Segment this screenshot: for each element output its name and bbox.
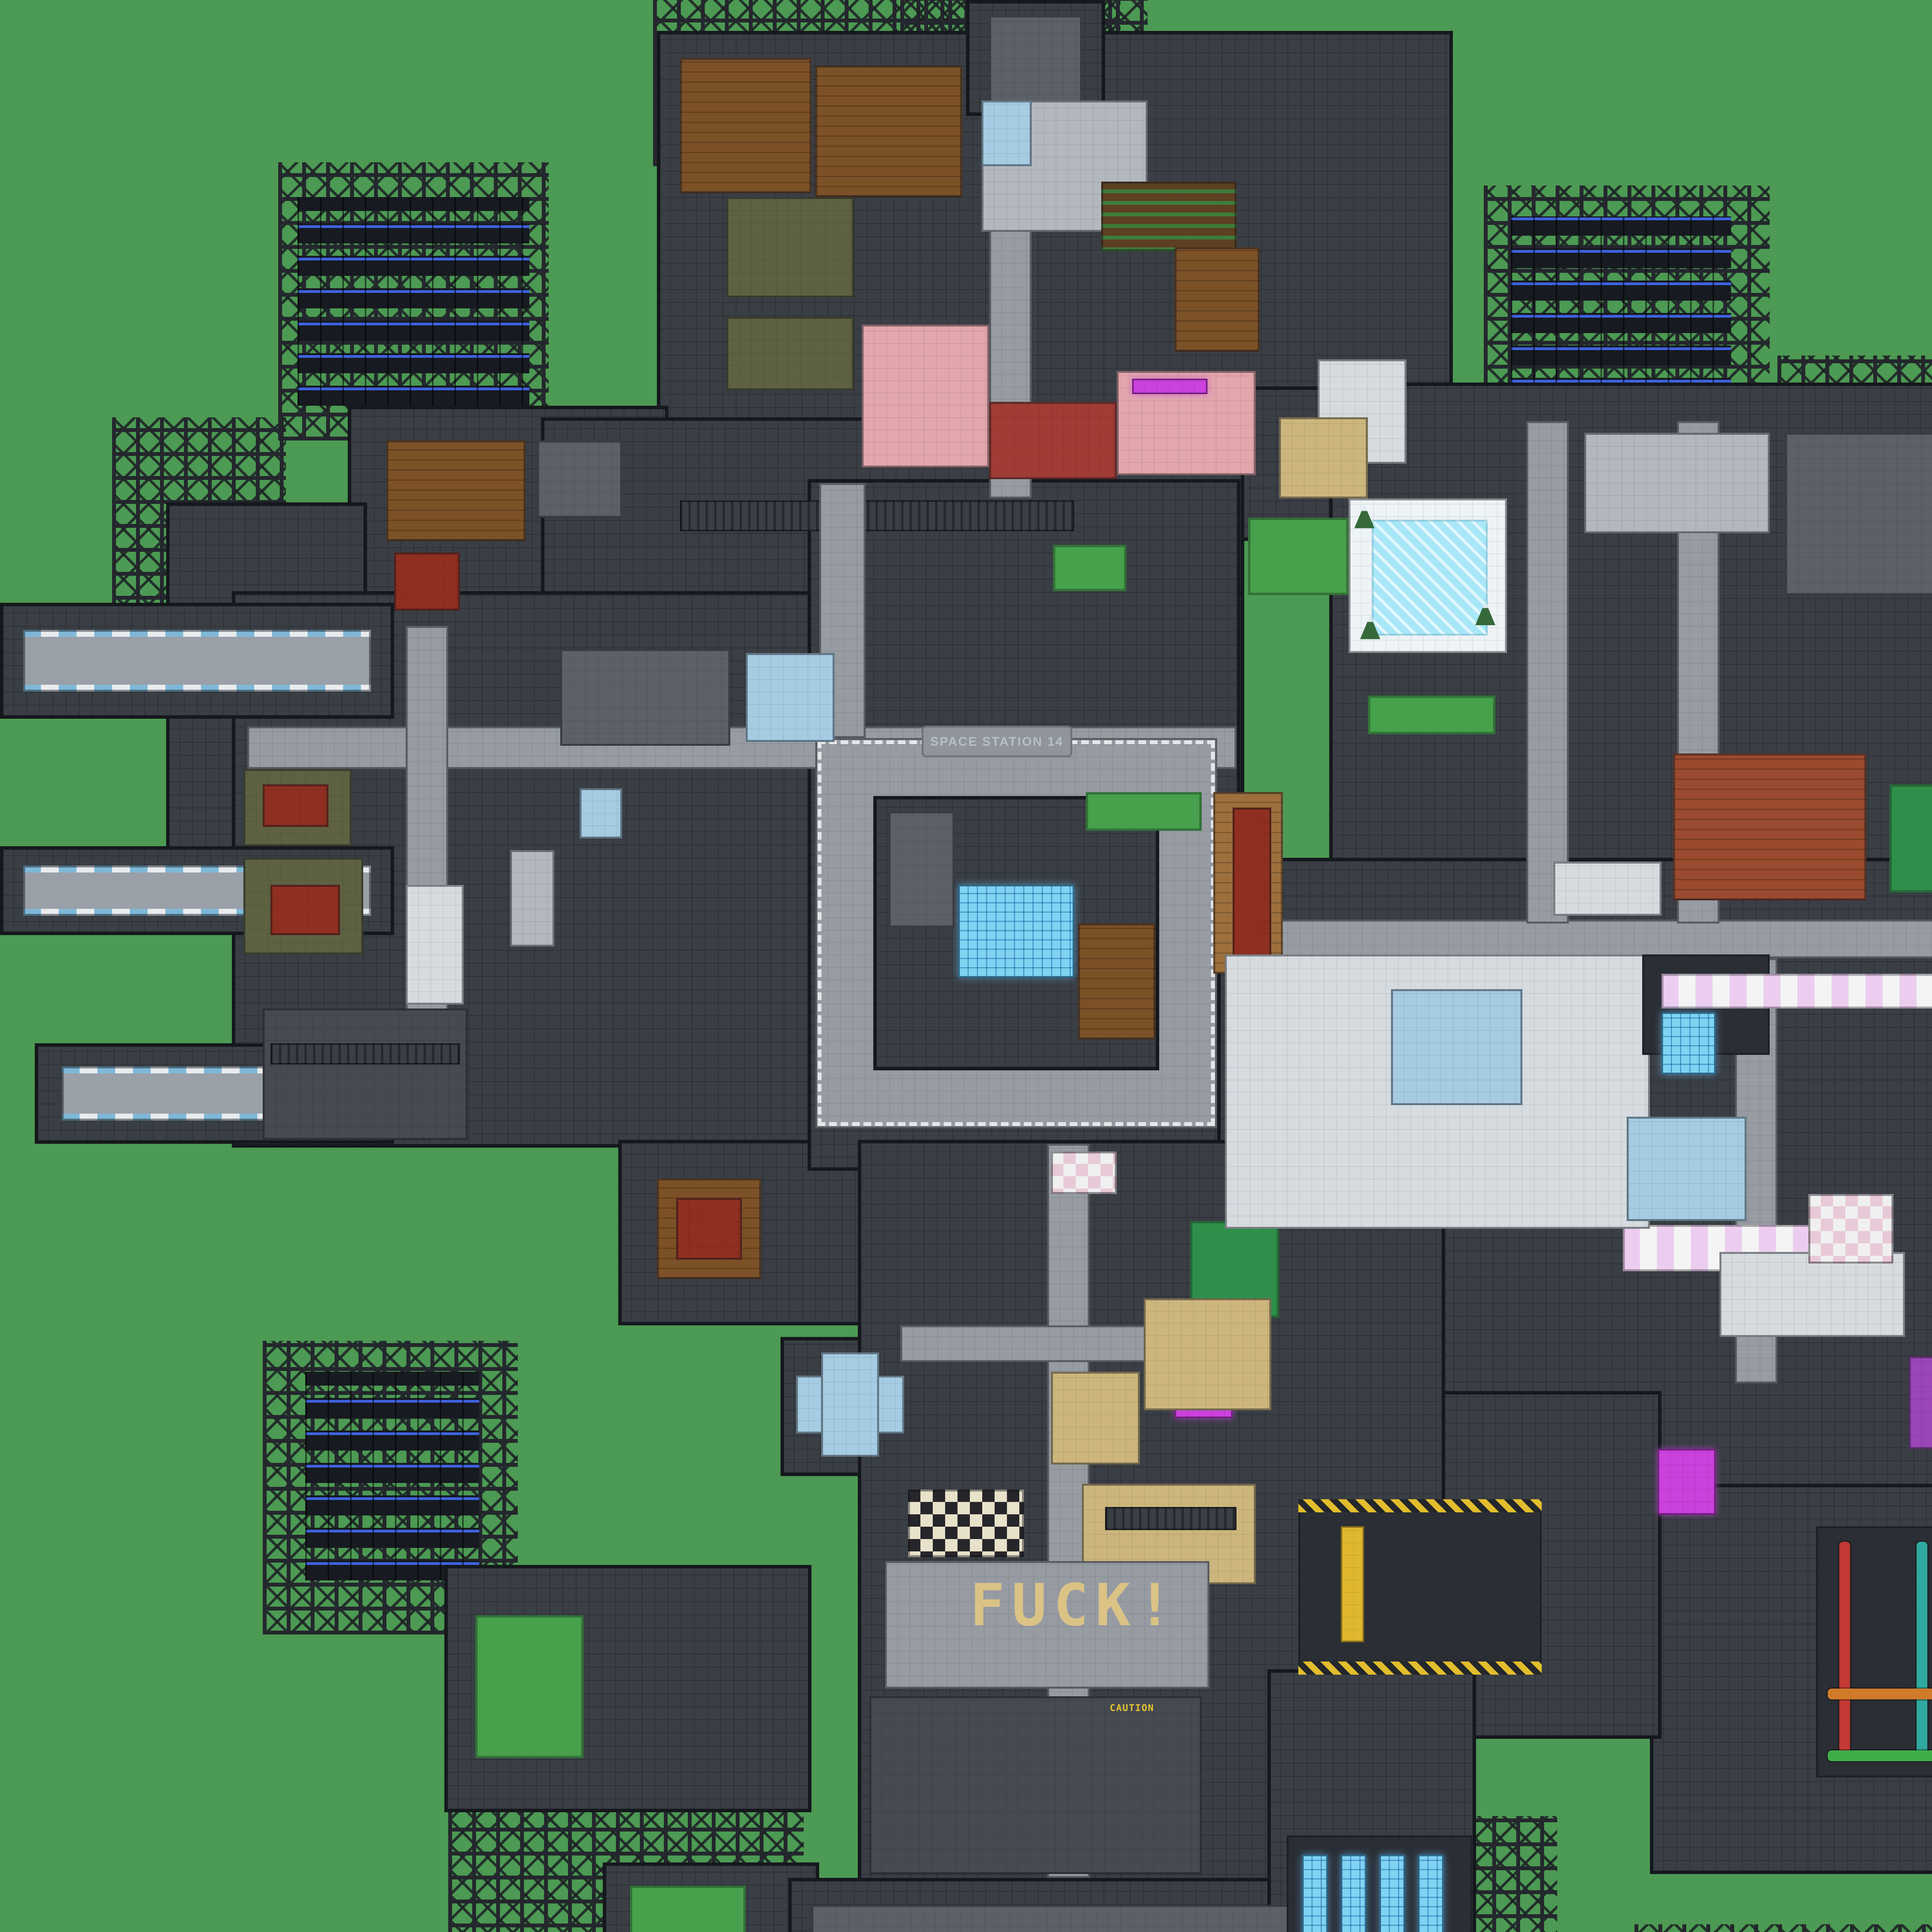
vault-conveyor [270, 1043, 460, 1065]
server-racks [1662, 1012, 1716, 1074]
dining-room [1078, 923, 1155, 1039]
server-row-4 [1418, 1855, 1444, 1932]
meeting-table [270, 885, 340, 935]
fitness-room-v [821, 1352, 879, 1457]
kitchen-freezer [981, 100, 1032, 166]
lattice-evac-right [1468, 1816, 1557, 1932]
courtyard-garden [630, 1886, 746, 1932]
pipe-teal [1917, 1542, 1927, 1758]
gallery-red [394, 553, 460, 611]
courtyard-long [1248, 518, 1349, 595]
janitor-closet [537, 440, 622, 518]
station-map: SPACE STATION 14FUCK!CAUTION [0, 0, 1932, 1932]
kitchen-east [1553, 862, 1662, 916]
corridor-right-vertical [1526, 421, 1569, 923]
solar-array-c [305, 1372, 479, 1580]
bridge [958, 885, 1074, 978]
security-brig [862, 325, 989, 468]
pipe-orange [1828, 1689, 1932, 1699]
eva-storage [510, 850, 554, 947]
laundry [580, 788, 622, 838]
engine-hazard-top [1298, 1499, 1542, 1512]
caution-floor: CAUTION [1110, 1703, 1154, 1713]
engine-room [1298, 1499, 1542, 1673]
library [815, 66, 962, 197]
disposals-conveyor [680, 500, 1074, 531]
solar-array-d [1511, 216, 1731, 398]
courtyard-mid [1086, 792, 1202, 831]
floor-graffiti: FUCK! [970, 1577, 1179, 1634]
hydroponics [1101, 182, 1236, 251]
arrivals-dock-1 [23, 630, 371, 692]
rad-collectors [1341, 1526, 1364, 1642]
conference-table [263, 784, 328, 827]
atmospherics [1816, 1526, 1932, 1777]
storage-room [560, 649, 730, 746]
pipe-green [1828, 1750, 1932, 1761]
pipe-red [1839, 1542, 1850, 1758]
science-pink-hall [1662, 974, 1932, 1009]
mech-bay-checker [1808, 1194, 1893, 1264]
museum [386, 440, 526, 541]
medbay-ward [1627, 1117, 1747, 1221]
containment-field-1 [1658, 1449, 1716, 1515]
dorms-lower [726, 317, 854, 390]
game-room [1889, 784, 1932, 893]
maintenance-engine [869, 1696, 1202, 1874]
cargo-conveyor [1105, 1507, 1236, 1530]
right-wing-galley [1584, 433, 1770, 533]
bar-carpet [1233, 808, 1271, 958]
plaza-pods [889, 811, 954, 927]
security-lockers [989, 402, 1117, 479]
disposals-chute [1132, 379, 1207, 394]
courtyard-south-rink [1368, 696, 1495, 734]
engineering-lobby [1144, 1298, 1271, 1410]
server-row-3 [1379, 1855, 1405, 1932]
mint-checker-room [1051, 1151, 1117, 1194]
lounge [680, 58, 811, 193]
ice-rink [1372, 520, 1488, 636]
vault [263, 1009, 468, 1140]
corridor-right [1213, 920, 1932, 958]
science-lab [1719, 1252, 1905, 1337]
solar-array-a [298, 197, 529, 406]
station-plaque: SPACE STATION 14 [922, 726, 1072, 757]
theater-stage [908, 1490, 1024, 1557]
captain-carpet [676, 1198, 742, 1260]
study-hall [1673, 753, 1866, 900]
server-row-1 [1302, 1855, 1328, 1932]
courtyard-top [1053, 545, 1126, 591]
showers [746, 653, 835, 742]
warehouse-dock [1279, 417, 1368, 498]
lattice-bottom-right [1634, 1924, 1932, 1932]
courtyard-sw [475, 1615, 583, 1758]
break-room [1051, 1372, 1140, 1464]
dorms-upper [726, 197, 854, 298]
right-wing-rooms [1785, 433, 1932, 595]
toilets [406, 885, 464, 1005]
hos-office [1175, 247, 1260, 352]
surgery [1391, 989, 1522, 1105]
chapel-arm-floor [989, 15, 1082, 108]
server-row-2 [1341, 1855, 1366, 1932]
engine-hazard-bottom [1298, 1662, 1542, 1675]
rd-office [1909, 1356, 1932, 1449]
